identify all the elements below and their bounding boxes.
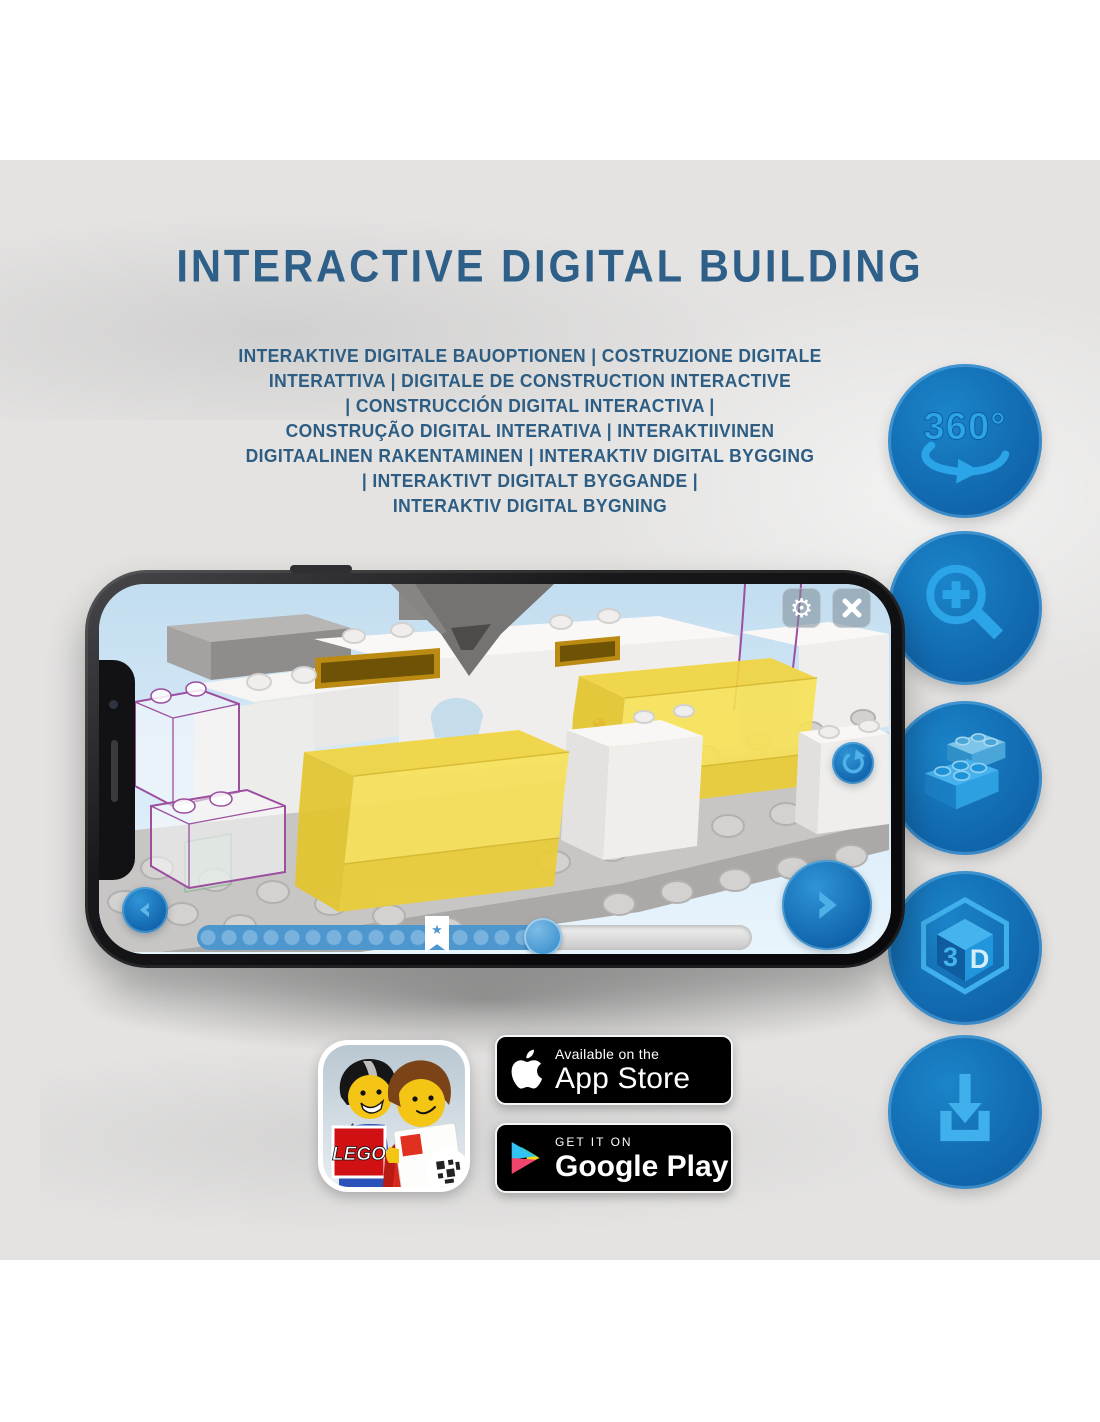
progress-thumb[interactable] xyxy=(524,918,562,954)
progress-fill xyxy=(197,925,552,950)
star-icon: ★ xyxy=(431,922,443,938)
gear-icon: ⚙ xyxy=(790,595,813,621)
background-shadow-bottom xyxy=(40,1040,940,1240)
lego-app-icon[interactable]: LEGO xyxy=(318,1040,470,1192)
app-store-title: App Store xyxy=(555,1063,690,1095)
previous-step-button[interactable] xyxy=(122,887,168,933)
settings-button[interactable]: ⚙ xyxy=(782,588,821,628)
close-icon xyxy=(842,598,862,618)
build-progress-bar[interactable]: ★ xyxy=(197,925,752,950)
multilingual-subtitle: INTERAKTIVE DIGITALE BAUOPTIONEN | COSTR… xyxy=(142,344,918,519)
chevron-left-icon xyxy=(133,898,157,922)
svg-text:LEGO: LEGO xyxy=(332,1144,386,1165)
feature-brick-icon xyxy=(888,701,1042,855)
subtitle-line: INTERATTIVA | DIGITALE DE CONSTRUCTION I… xyxy=(142,369,918,394)
app-store-badge[interactable]: Available on the App Store xyxy=(495,1035,733,1105)
page-title: INTERACTIVE DIGITAL BUILDING xyxy=(17,242,1084,293)
google-play-icon xyxy=(497,1139,555,1177)
lego-build-scene xyxy=(99,584,891,954)
subtitle-line: | CONSTRUCCIÓN DIGITAL INTERACTIVA | xyxy=(142,394,918,419)
smartphone: ⚙ xyxy=(85,570,905,968)
phone-power-button xyxy=(290,565,352,573)
feature-360-rotation-icon: 360° xyxy=(888,364,1042,518)
subtitle-line: | INTERAKTIVT DIGITALT BYGGANDE | xyxy=(142,469,918,494)
lego-app-artwork: LEGO xyxy=(323,1045,465,1187)
phone-notch xyxy=(99,660,135,880)
marketing-page: INTERACTIVE DIGITAL BUILDING INTERAKTIVE… xyxy=(0,0,1100,1422)
app-screen: ⚙ xyxy=(99,584,891,954)
google-play-title: Google Play xyxy=(555,1151,728,1183)
google-play-tagline: GET IT ON xyxy=(555,1134,728,1151)
earpiece-speaker xyxy=(111,740,118,802)
close-button[interactable] xyxy=(832,588,871,628)
app-store-tagline: Available on the xyxy=(555,1046,690,1063)
subtitle-line: DIGITAALINEN RAKENTAMINEN | INTERAKTIV D… xyxy=(142,444,918,469)
chevron-right-icon xyxy=(804,882,850,928)
360-icon: 360° xyxy=(909,385,1021,497)
rotate-button[interactable] xyxy=(832,742,874,784)
feature-zoom-icon xyxy=(888,531,1042,685)
front-camera xyxy=(109,700,118,709)
apple-icon xyxy=(497,1049,555,1091)
lego-bricks-icon xyxy=(909,722,1021,834)
svg-text:360°: 360° xyxy=(923,406,1006,448)
subtitle-line: INTERAKTIVE DIGITALE BAUOPTIONEN | COSTR… xyxy=(142,344,918,369)
subtitle-line: CONSTRUÇÃO DIGITAL INTERATIVA | INTERAKT… xyxy=(142,419,918,444)
rotate-icon xyxy=(838,748,868,778)
download-arrow-icon xyxy=(909,1056,1021,1168)
svg-text:D: D xyxy=(970,944,989,974)
magnifier-plus-icon xyxy=(909,552,1021,664)
subtitle-line: INTERAKTIV DIGITAL BYGNING xyxy=(142,494,918,519)
google-play-badge[interactable]: GET IT ON Google Play xyxy=(495,1123,733,1193)
next-step-button[interactable] xyxy=(782,860,872,950)
